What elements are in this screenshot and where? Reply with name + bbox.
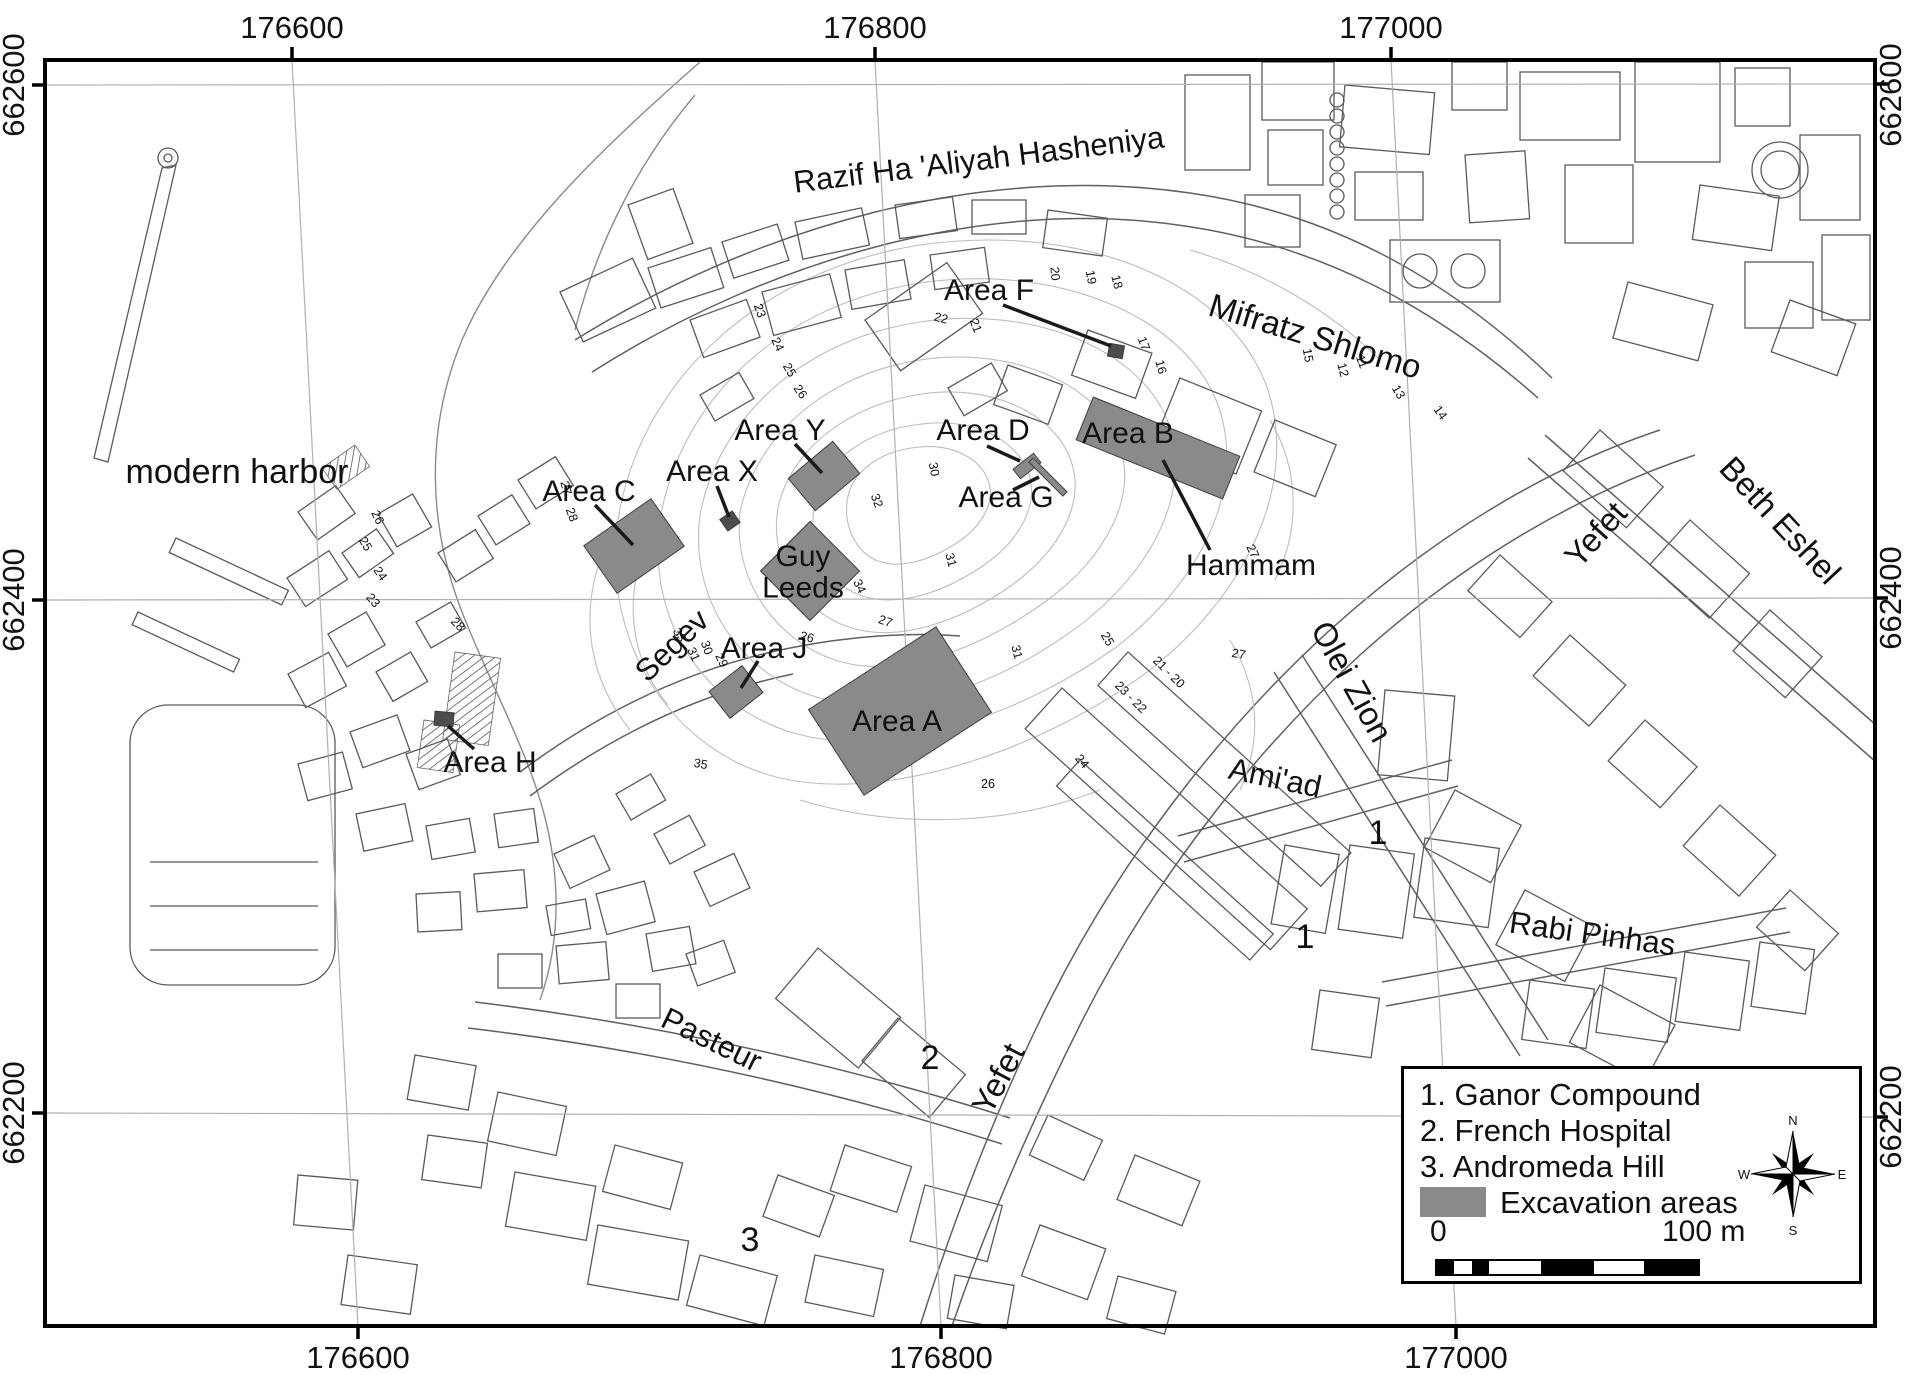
contour-label: 19 [1083,269,1099,285]
contour-label: 21 - 20 [1150,653,1187,690]
axis-left-662200: 662200 [0,1061,31,1164]
axis-right-662200: 662200 [1873,1065,1908,1168]
label-area-label-h: Area H [443,746,536,779]
excavation-areas-swatch [1420,1187,1486,1217]
compass-e: E [1838,1167,1847,1182]
axis-top-176800: 176800 [823,10,926,45]
label-area-label-g: Area G [958,481,1053,514]
scale-bar-segment [1489,1261,1541,1274]
legend-item-french-hospital: 2. French Hospital [1420,1113,1672,1149]
contour-label: 35 [693,756,709,772]
contour-label: 18 [1108,273,1125,290]
label-area-label-c: Area C [542,475,635,508]
contour-label: 31 [942,551,959,568]
leader-lines-layer [448,305,1210,749]
axis-left-662600: 662600 [0,33,31,136]
contour-label: 25 [1098,629,1117,648]
contour-label: 31 [1008,643,1025,660]
site-number-3: 3 [741,1221,760,1259]
excavation-areas-layer [434,343,1240,795]
contour-label: 30 [926,461,942,477]
leader-line [987,446,1020,461]
label-area-label-b: Area B [1082,417,1174,450]
axis-right-662600: 662600 [1873,43,1908,146]
label-area-label-a: Area A [852,705,942,738]
contour-label: 22 [933,310,950,327]
label-place-modern-harbor: modern harbor [125,453,348,491]
label-area-label-j: Area J [721,632,808,665]
label-area-label-f: Area F [944,274,1034,307]
contour-label: 25 [780,360,799,379]
contour-label: 25 [356,534,375,553]
contour-label: 23 [751,302,769,320]
axis-top-176600: 176600 [240,10,343,45]
contour-label: 24 [768,335,787,354]
compass-n: N [1788,1113,1797,1128]
buildings-ganor [1025,652,1351,960]
scale-bar-segment [1437,1261,1454,1274]
label-street-amiad: Ami'ad [1226,751,1325,805]
scale-bar-segment [1594,1261,1644,1274]
leader-line [717,486,729,517]
contour-label: 15 [1300,347,1316,363]
excavation-area-x [720,511,740,531]
label-street-razif: Razif Ha 'Aliyah Hasheniya [792,119,1167,199]
axis-right-662400: 662400 [1873,546,1908,649]
gridline-horizontal [45,84,1875,85]
axis-bottom-177000: 177000 [1404,1340,1507,1375]
contour-label: 26 [981,777,995,791]
compass-rose: N E S W [1738,1109,1848,1239]
excavation-area-h [434,711,454,727]
scale-end-label: 100 m [1662,1215,1745,1249]
gridline-vertical [292,60,358,1326]
contour-label: 32 [868,492,886,510]
site-number-1: 1 [1369,814,1388,852]
contour-label: 12 [1334,361,1351,378]
contour-label: 23 [363,591,383,611]
scale-bar-segment [1644,1261,1698,1274]
site-number-1: 1 [1296,918,1315,956]
contour-label: 16 [1152,358,1169,375]
excavation-area-c [584,499,684,594]
contour-label: 17 [1135,335,1153,353]
label-street-yefet-north: Yefet [1557,494,1634,574]
scale-start-label: 0 [1430,1215,1447,1249]
leader-line [1003,305,1111,346]
label-street-yefet-south: Yefet [964,1037,1031,1120]
contour-label: 27 [1231,646,1247,662]
axis-bottom-176800: 176800 [889,1340,992,1375]
axis-top-177000: 177000 [1339,10,1442,45]
label-street-beth-eshel: Beth Eshel [1712,449,1848,591]
label-area-label-y: Area Y [734,414,825,447]
scale-bar-segment [1541,1261,1594,1274]
scale-bar [1435,1259,1700,1276]
legend-box: 1. Ganor Compound 2. French Hospital 3. … [1401,1066,1862,1284]
site-number-2: 2 [921,1039,940,1077]
contour-label: 20 [1047,266,1062,281]
excavation-area-j [709,666,763,719]
label-area-label-d: Area D [936,414,1029,447]
contour-label: 27 [876,612,894,630]
contour-label: 21 [967,317,985,335]
contour-label: 14 [1431,403,1450,422]
scale-bar-segment [1454,1261,1472,1274]
compass-s: S [1789,1223,1798,1238]
contour-label: 13 [1389,382,1408,401]
contour-label: 28 [563,506,581,524]
label-area-label-x: Area X [666,455,758,488]
excavation-map-figure: Razif Ha 'Aliyah HasheniyaMifratz Shlomo… [0,0,1923,1375]
axis-bottom-176600: 176600 [306,1340,409,1375]
contour-label: 26 [791,382,810,401]
axis-left-662400: 662400 [0,548,31,651]
compass-star [1751,1131,1835,1217]
scale-bar-segment [1472,1261,1489,1274]
legend-item-andromeda: 3. Andromeda Hill [1420,1149,1665,1185]
legend-item-ganor: 1. Ganor Compound [1420,1077,1701,1113]
compass-w: W [1738,1167,1751,1182]
